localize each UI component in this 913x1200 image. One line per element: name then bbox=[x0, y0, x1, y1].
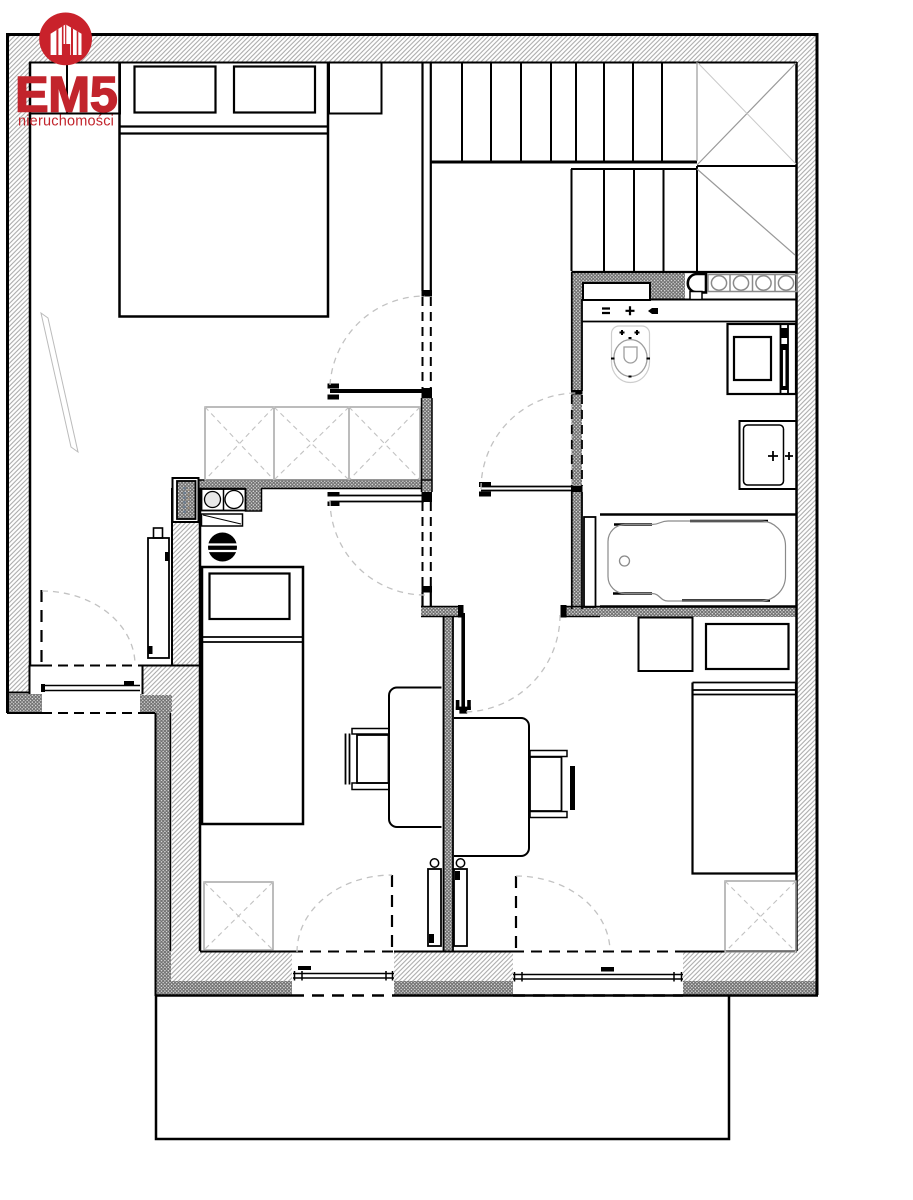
svg-text:nieruchomości: nieruchomości bbox=[18, 114, 114, 130]
